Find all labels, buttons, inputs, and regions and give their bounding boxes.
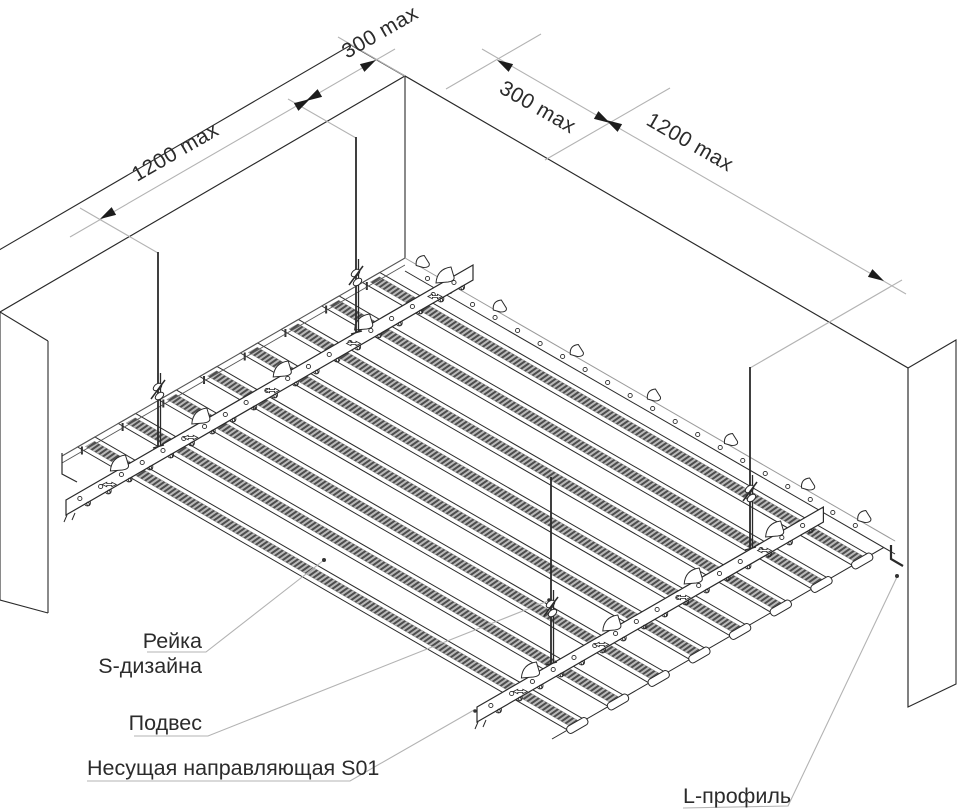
callout-slat-line1: Рейка (143, 629, 202, 653)
right-wall-end-face (908, 340, 956, 707)
leader-dot (547, 598, 551, 602)
carrier-hole (369, 328, 373, 332)
carrier-hole (202, 424, 206, 428)
profile-hole (606, 380, 610, 384)
profile-hole (696, 432, 700, 436)
callout-hanger: Подвес (129, 711, 203, 735)
carrier-hole (801, 523, 805, 527)
profile-hole (831, 510, 835, 514)
profile-hole (561, 354, 565, 358)
carrier-hole (223, 412, 227, 416)
carrier-hole (717, 571, 721, 575)
callout-carrier: Несущая направляющая S01 (87, 756, 379, 780)
profile-hole (425, 276, 429, 280)
carrier-hole (697, 583, 701, 587)
carrier-hole (390, 316, 394, 320)
diagram-canvas: 1200 max 300 max 300 max 1200 max (0, 0, 960, 809)
profile-hole (763, 471, 767, 475)
dim-label-300-right: 300 max (496, 76, 580, 138)
profile-hole (651, 406, 655, 410)
carrier-hole (410, 304, 414, 308)
ext-line-corner-right (446, 34, 541, 89)
carrier-hole (78, 496, 82, 500)
carrier-hole (613, 631, 617, 635)
carrier-hole (655, 607, 659, 611)
profile-hole (786, 484, 790, 488)
carrier-hole (551, 667, 555, 671)
leader-dot (895, 574, 899, 578)
carrier-hole (286, 376, 290, 380)
carrier-hole (572, 655, 576, 659)
carrier-hole (244, 400, 248, 404)
profile-hole (538, 341, 542, 345)
profile-hole (583, 367, 587, 371)
carrier-hole (489, 703, 493, 707)
ceiling-diagram: 1200 max 300 max 300 max 1200 max (0, 0, 960, 809)
carrier-hole (510, 691, 514, 695)
profile-hole (515, 328, 519, 332)
profile-hole (853, 523, 857, 527)
profile-hole (741, 458, 745, 462)
profile-hole (470, 302, 474, 306)
carrier-hole (306, 364, 310, 368)
dim-arrow (868, 269, 886, 285)
carrier-hole (634, 619, 638, 623)
leader-dot (322, 558, 326, 562)
carrier-hole (327, 352, 331, 356)
carrier-hole (119, 472, 123, 476)
carrier-hole (780, 535, 784, 539)
profile-hole (718, 445, 722, 449)
profile-hole (628, 393, 632, 397)
profile-hole (673, 419, 677, 423)
dim-label-1200-right: 1200 max (643, 108, 738, 176)
callout-l-profile: L-профиль (683, 784, 791, 808)
dim-arrow (594, 111, 612, 127)
callout-slat-line2: S-дизайна (98, 654, 202, 678)
carrier-hole (161, 448, 165, 452)
dim-label-300-left: 300 max (338, 1, 422, 63)
carrier-hole (738, 559, 742, 563)
leader-dot (473, 709, 477, 713)
carrier-hole (530, 679, 534, 683)
carrier-hole (99, 484, 103, 488)
profile-hole (493, 315, 497, 319)
carrier-hole (140, 460, 144, 464)
profile-hole (808, 497, 812, 501)
